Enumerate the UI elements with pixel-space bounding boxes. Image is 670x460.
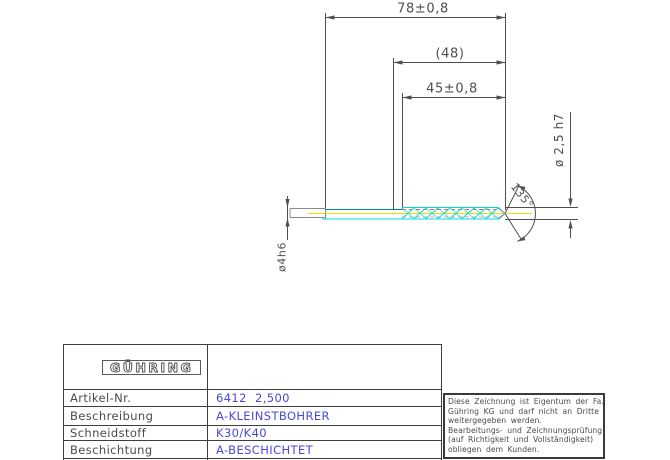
drill-body [322, 210, 402, 220]
logo-cell: GÜHRING [64, 345, 208, 390]
drill-outline [290, 208, 532, 220]
extension-lines [326, 13, 579, 220]
notice-line: Diese Zeichnung ist Eigentum der Fa. [448, 397, 600, 407]
table-header-row: GÜHRING [64, 345, 442, 390]
spec-label: Schneidstoff [64, 426, 208, 441]
spec-label: Beschreibung [64, 407, 208, 426]
overall-length-dimension: 78±0,8 [397, 2, 449, 17]
reference-length-dimension: (48) [435, 47, 464, 62]
spec-label: Beschichtung [64, 441, 208, 459]
spec-table: GÜHRING Artikel-Nr. 6412 2,500 Beschreib… [63, 344, 442, 460]
table-row: Beschreibung A-KLEINSTBOHRER [64, 407, 442, 426]
empty-header-cell [208, 345, 442, 390]
table-row: Schneidstoff K30/K40 [64, 426, 442, 441]
notice-line: weitergegeben werden. [448, 416, 600, 426]
table-row: Artikel-Nr. 6412 2,500 [64, 390, 442, 407]
spec-value: A-BESCHICHTET [208, 441, 442, 459]
ownership-notice: Diese Zeichnung ist Eigentum der Fa. Güh… [443, 393, 605, 459]
shank-diameter-dimension: ø4h6 [276, 242, 289, 272]
notice-line: Bearbeitungs- und Zeichnungsprüfung [448, 426, 600, 436]
guehring-logo: GÜHRING [102, 360, 201, 375]
spec-value: 6412 2,500 [208, 390, 442, 407]
cutting-diameter-dimension: ø 2,5 h7 [552, 113, 566, 167]
spec-value: K30/K40 [208, 426, 442, 441]
table-row: Beschichtung A-BESCHICHTET [64, 441, 442, 459]
notice-line: Gühring KG und darf nicht an Dritte [448, 407, 600, 417]
flute-length-dimension: 45±0,8 [426, 82, 478, 97]
drawing-sheet: 78±0,8 (48) 45±0,8 ø 2,5 h7 135° ø4h6 GÜ… [0, 0, 670, 460]
spec-label: Artikel-Nr. [64, 390, 208, 407]
notice-line: (auf Richtigkeit und Vollständigkeit) [448, 435, 600, 445]
spec-value: A-KLEINSTBOHRER [208, 407, 442, 426]
notice-line: obliegen dem Kunden. [448, 445, 600, 455]
